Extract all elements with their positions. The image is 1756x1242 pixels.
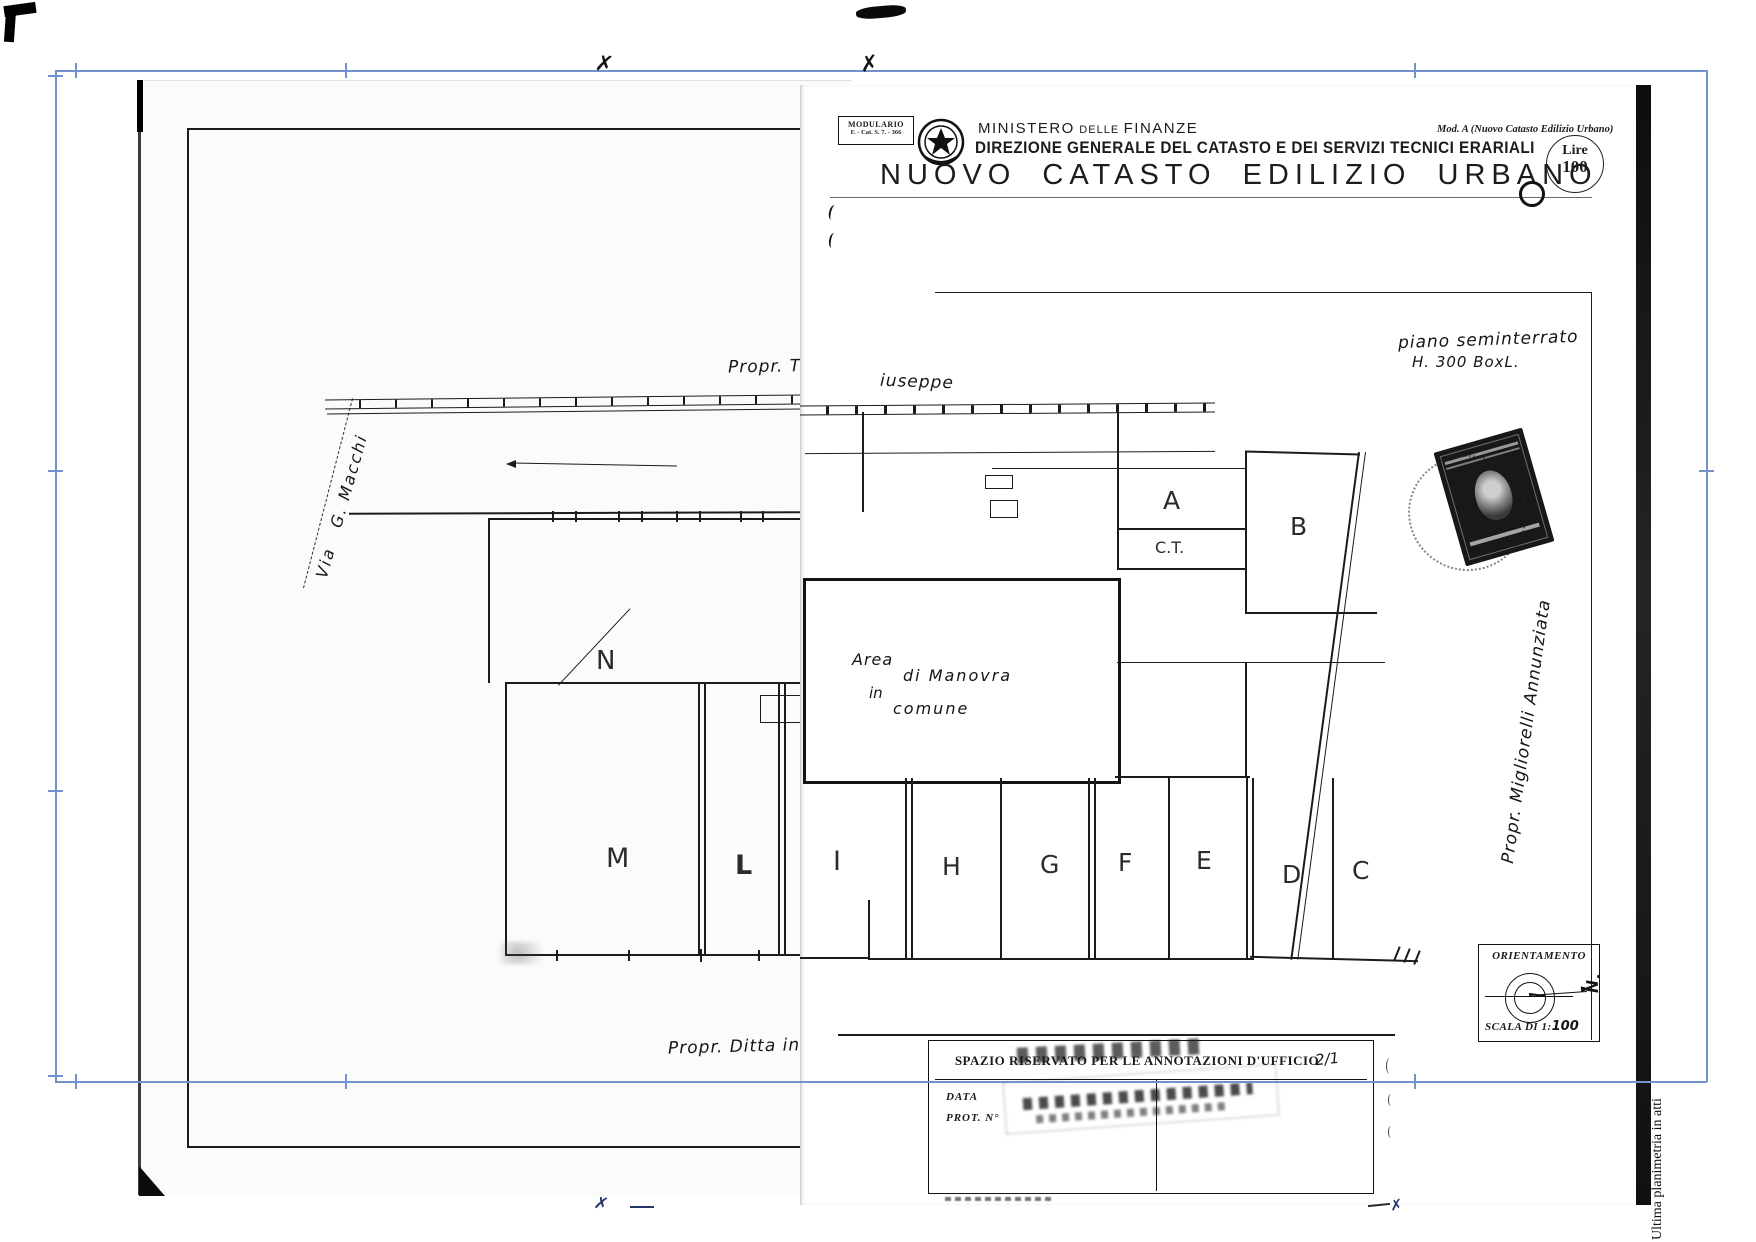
wall-line [505,682,507,955]
header-rule [830,197,1592,198]
plan-frame-line [187,128,827,130]
wall-line [704,682,706,955]
registration-line-top [55,70,1707,72]
orientation-box: ORIENTAMENTO N SCALA DI 1:100 [1478,944,1600,1042]
fee-amount: 100 [1547,158,1603,175]
room-label-c: C [1352,856,1369,885]
registration-tick [1414,63,1416,78]
form-title: NUOVO CATASTO EDILIZIO URBANO [880,159,1598,192]
room-label-d: D [1282,860,1301,889]
room-label-ct: C.T. [1155,538,1184,557]
north-label: N [1582,979,1601,993]
registration-tick [48,470,63,472]
window-tick [552,511,554,522]
wall-line [868,958,1252,960]
scan-speckle [500,942,560,964]
wall-line [1117,568,1245,570]
office-box-top-rule [838,1034,1395,1036]
registration-tick [48,1075,63,1077]
compass-inner-circle [1514,982,1546,1014]
plan-frame-line [1591,292,1592,1040]
registration-line-bottom [55,1081,1707,1083]
margin-note: Ultima planimetria in atti [1650,1098,1666,1240]
wall-line [488,518,803,520]
mod-ref: Mod. A (Nuovo Catasto Edilizio Urbano) [1437,124,1613,135]
fee-currency: Lire [1547,144,1603,158]
wall-line [1000,778,1002,960]
page-seam-line [800,85,801,1205]
wall-line [868,900,870,958]
registration-cross-mark: ✗ [1389,1195,1404,1215]
wall-line [1168,778,1170,960]
modulario-box: MODULARIO F. - Cat. S. 7. - 366 [838,116,914,145]
area-label-word1: Area [852,650,893,669]
registration-tick [48,790,63,792]
wall-line [1088,778,1090,960]
wall-line [1117,528,1245,530]
ink-ring-mark [1519,181,1545,207]
wall-line [992,468,1245,469]
room-label-f: F [1118,848,1132,877]
scale-value: 100 [1552,1019,1579,1034]
area-label-word2: di Manovra [903,666,1012,685]
scale-prefix: SCALA DI 1: [1485,1021,1552,1033]
hatch-tick [628,950,630,961]
wall-line [1117,412,1119,568]
room-label-i: I [833,846,841,877]
wall-line [1252,778,1254,960]
wall-line [1245,662,1247,778]
registration-tick [75,1074,77,1089]
modulario-ref: F. - Cat. S. 7. - 366 [839,129,913,136]
page-curl-mark [1388,1094,1394,1106]
wall-line [905,778,907,960]
registration-cross-mark: ✗ [859,51,880,78]
hatch-tick [758,950,760,961]
page-curl-mark [1388,1126,1394,1138]
floor-dimension: H. 300 BoxL. [1412,353,1520,371]
plan-frame-line [187,1146,827,1148]
room-label-n: N [596,646,615,676]
wall-line [698,682,700,955]
scan-smudge [856,4,907,20]
door-jamb [985,475,1013,489]
north-label-dot [1597,975,1600,978]
room-label-b: B [1290,512,1307,541]
modulario-title: MODULARIO [839,120,913,129]
room-label-l: L [735,850,752,881]
scan-edge-strip [1636,85,1651,1205]
window-tick [762,511,764,522]
registration-cross-mark: ✗ [592,1193,610,1216]
ministry-line: MINISTERO DELLE FINANZE [978,120,1198,138]
registration-line-right [1706,70,1708,1082]
window-tick [740,511,742,522]
ministry-word: MINISTERO [978,120,1075,137]
wall-line [505,682,805,684]
registration-cross-mark: ✗ [593,51,615,78]
window-tick [676,511,678,522]
plan-frame-line [187,128,189,1148]
fine-print-smear [945,1197,1055,1201]
door-jamb [760,695,802,723]
ministry-word-small: DELLE [1079,124,1119,136]
scanned-cadastral-document: Via G. Macchi N M L Propr. Turchetti G P… [0,0,1756,1242]
wall-line [1094,778,1096,960]
prot-label: PROT. N° [946,1112,1000,1124]
room-label-g: G [1040,850,1059,879]
wall-line [1117,662,1385,663]
registration-tick [1414,1074,1416,1089]
room-label-a: A [1163,486,1180,515]
area-label-word4: comune [893,699,969,718]
ink-stamp [1003,1064,1280,1135]
registration-tick [48,75,63,77]
room-label-e: E [1196,846,1212,875]
scan-smudge [4,10,16,43]
date-label: DATA [946,1091,978,1103]
wall-line [862,412,864,512]
wall-line [1332,778,1334,958]
hatch-tick [700,949,702,962]
fee-circle: Lire 100 [1546,135,1604,193]
room-label-h: H [942,852,961,881]
registration-tick [75,63,77,78]
ministry-word: FINANZE [1124,120,1199,137]
room-label-m: M [606,843,629,874]
registration-tick [345,1074,347,1089]
wall-line [488,518,490,683]
left-page-sheet [140,80,852,1196]
leader-arrow [506,460,516,468]
decor [927,128,955,155]
scale-label: SCALA DI 1:100 [1485,1017,1579,1035]
area-label-word3: in [869,684,883,702]
wall-line [1245,452,1247,612]
wall-line [1115,776,1250,778]
window-tick [575,511,577,522]
wall-line [911,778,913,960]
owner-top-label-cont: iuseppe [880,371,955,394]
registration-tick [345,63,347,78]
scan-edge-blob [137,80,143,132]
page-curl-mark [1386,1058,1393,1074]
window-tick [641,511,643,522]
orientation-title: ORIENTAMENTO [1479,950,1599,962]
wall-line [1246,778,1248,960]
wall-line [1245,612,1377,614]
registration-line-left [55,70,57,1082]
window-tick [699,511,701,522]
directorate-line: DIREZIONE GENERALE DEL CATASTO E DEI SER… [975,138,1535,158]
scan-edge-line [138,80,141,1195]
wall-line [800,957,870,959]
office-handwritten-number: 2/1 [1314,1049,1340,1069]
plan-frame-line [935,292,1592,293]
registration-tick [1699,470,1714,472]
office-annotations-box: SPAZIO RISERVATO PER LE ANNOTAZIONI D'UF… [928,1040,1374,1194]
registration-dash [630,1206,654,1208]
door-jamb [990,500,1018,518]
window-tick [618,511,620,522]
